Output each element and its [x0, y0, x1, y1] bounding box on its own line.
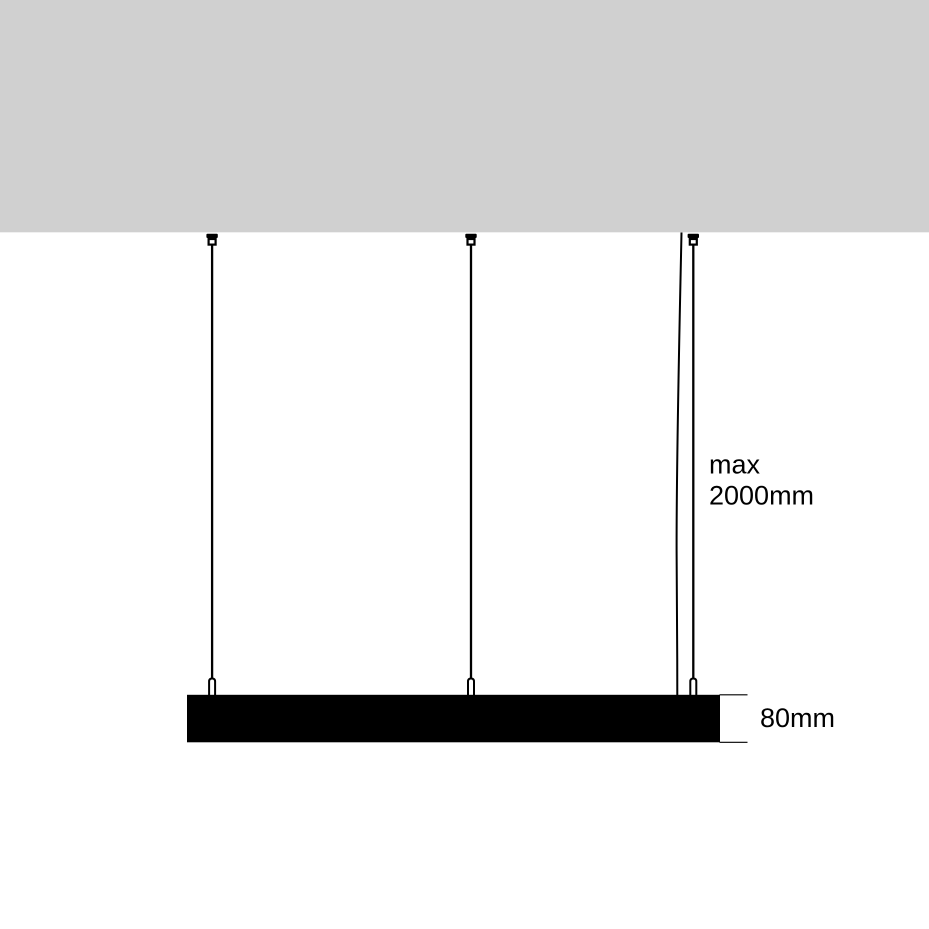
svg-text:max: max — [709, 450, 761, 480]
svg-text:2000mm: 2000mm — [709, 481, 814, 511]
svg-text:80mm: 80mm — [760, 703, 835, 733]
